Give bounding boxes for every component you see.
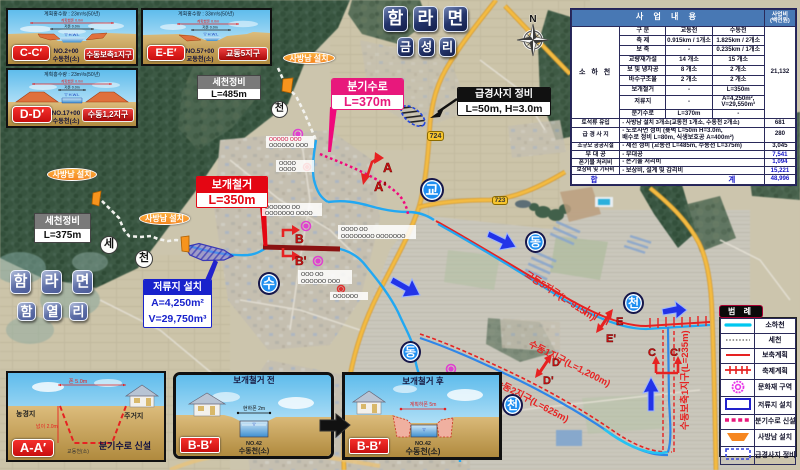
svg-text:수동천(소): 수동천(소) (406, 446, 441, 456)
svg-text:계획홍수량 : 23m³/s(50년): 계획홍수량 : 23m³/s(50년) (44, 71, 100, 78)
svg-text:농경지: 농경지 (16, 409, 35, 418)
svg-text:저폰 0.0m: 저폰 0.0m (64, 24, 80, 29)
svg-text:계획홍수량 : 33m³/s(50년): 계획홍수량 : 33m³/s(50년) (178, 11, 234, 18)
svg-text:수동천(소): 수동천(소) (53, 55, 80, 63)
svg-text:교동천(소): 교동천(소) (67, 448, 89, 455)
svg-text:계획했폰 0.0m: 계획했폰 0.0m (61, 79, 83, 84)
svg-text:주거지: 주거지 (124, 411, 143, 420)
svg-text:보개철거 전: 보개철거 전 (233, 375, 275, 385)
svg-text:수동천(소): 수동천(소) (53, 117, 80, 125)
svg-text:NO.2+00: NO.2+00 (54, 48, 79, 55)
svg-text:▽ H.W.L: ▽ H.W.L (64, 92, 80, 97)
svg-text:▽ H.W.L: ▽ H.W.L (203, 32, 219, 37)
svg-text:넔이 2.0m: 넔이 2.0m (36, 423, 58, 430)
svg-text:계획했폰 0.0m: 계획했폰 0.0m (61, 18, 83, 23)
svg-text:분기수로 신설: 분기수로 신설 (99, 440, 151, 451)
svg-text:현하폰 2m: 현하폰 2m (243, 405, 265, 412)
svg-text:저폰 0.0m: 저폰 0.0m (64, 85, 80, 90)
svg-text:NO.42: NO.42 (246, 441, 262, 447)
svg-text:▽ H.W.L: ▽ H.W.L (64, 32, 80, 37)
svg-text:계획했폰 0.0m: 계획했폰 0.0m (197, 19, 219, 24)
svg-text:NO.57+00: NO.57+00 (186, 48, 215, 55)
svg-text:저폰 0.0m: 저폰 0.0m (202, 25, 218, 30)
svg-text:NO.17+00: NO.17+00 (52, 110, 81, 117)
svg-text:계획홍수량 : 23m³/s(50년): 계획홍수량 : 23m³/s(50년) (44, 11, 100, 18)
svg-text:보개철거 후: 보개철거 후 (402, 376, 444, 386)
svg-text:폰 5.0m: 폰 5.0m (69, 378, 88, 385)
svg-text:수동천(소): 수동천(소) (239, 446, 269, 455)
svg-text:교동천(소): 교동천(소) (187, 55, 214, 63)
svg-text:계획하폰 5m: 계획하폰 5m (410, 401, 437, 408)
